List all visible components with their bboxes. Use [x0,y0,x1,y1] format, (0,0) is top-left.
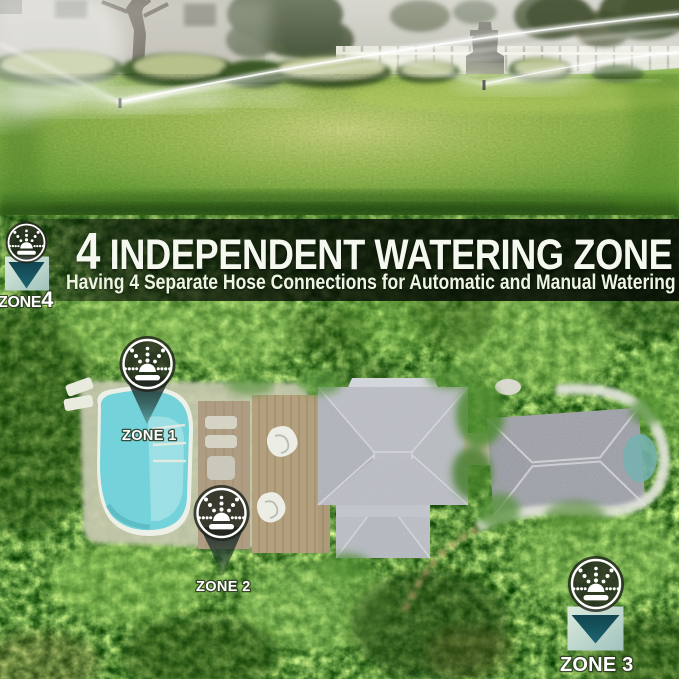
svg-text:ZONE 3: ZONE 3 [560,654,633,676]
svg-text:ZONE 1: ZONE 1 [122,428,177,444]
svg-text:ZONE 2: ZONE 2 [196,579,251,595]
svg-text:ZONE4: ZONE4 [0,287,54,312]
